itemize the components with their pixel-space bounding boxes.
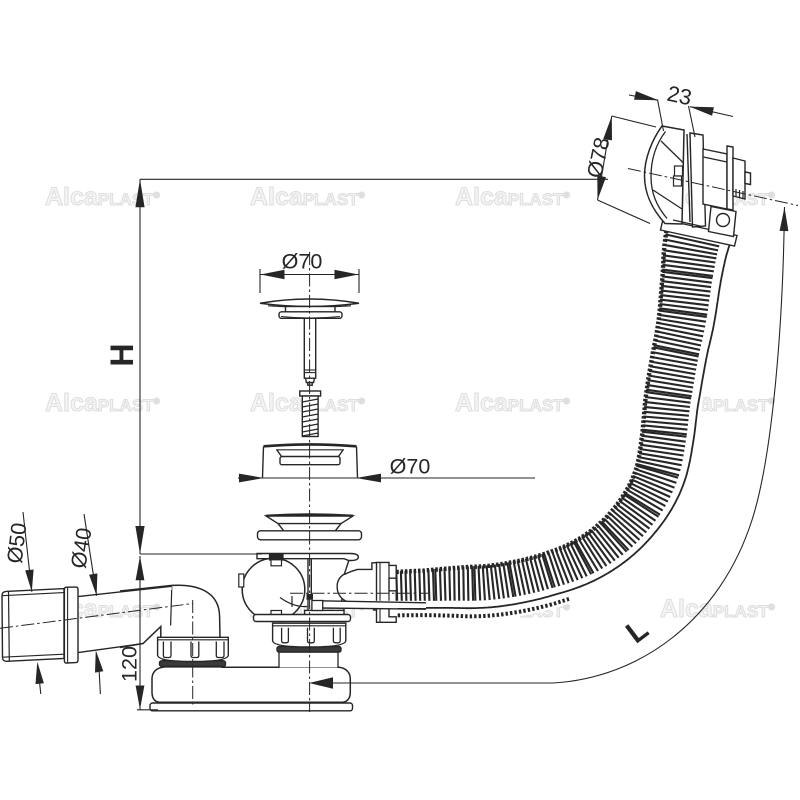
svg-text:Ø70: Ø70 bbox=[390, 455, 431, 479]
svg-text:H: H bbox=[104, 343, 140, 366]
svg-text:Ø70: Ø70 bbox=[282, 250, 323, 274]
svg-text:Ø50: Ø50 bbox=[3, 521, 32, 564]
svg-text:23: 23 bbox=[665, 81, 694, 111]
svg-text:120: 120 bbox=[118, 646, 142, 682]
